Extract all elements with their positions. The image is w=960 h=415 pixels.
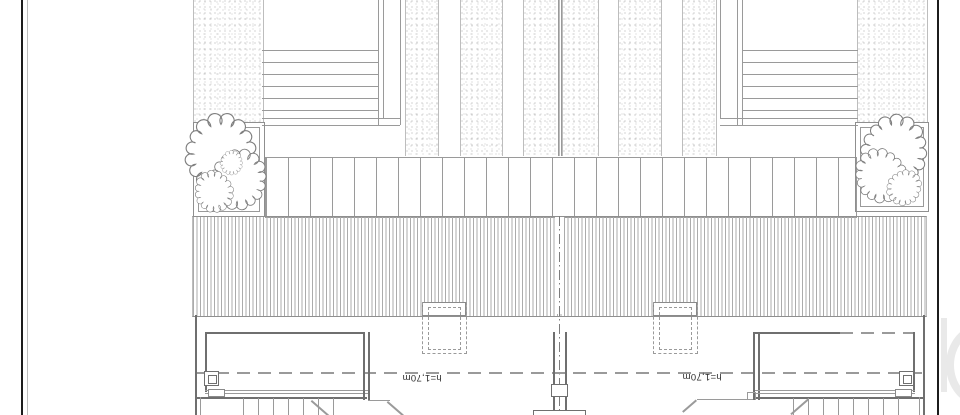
outer-wall-right-inner xyxy=(919,397,920,415)
stair-tread xyxy=(262,110,378,111)
tree-icon xyxy=(178,110,278,222)
opening-right-edge xyxy=(697,399,753,400)
tree-icon xyxy=(844,108,940,216)
stair-edge-right xyxy=(742,0,743,125)
stair-landing-line xyxy=(720,118,858,119)
stair-edge-left xyxy=(378,0,379,125)
room-left-wall-bottom-b xyxy=(205,393,368,394)
sheet-edge-left-inner xyxy=(27,0,28,415)
party-wall-right-face xyxy=(565,332,567,415)
architectural-plan-page: h=1,70m h=1,70m xyxy=(0,0,960,415)
stair-landing-line xyxy=(262,118,400,119)
tree-right xyxy=(844,108,940,216)
room-right-wall-bottom-b xyxy=(755,393,915,394)
shaft-box-right-inner xyxy=(903,375,912,384)
stair-tread xyxy=(262,86,378,87)
room-right-wall-top-solid xyxy=(755,332,840,334)
room-left-wall-right-b xyxy=(368,332,370,400)
gravel-column-right xyxy=(857,0,928,122)
tree-left xyxy=(178,110,278,222)
party-wall-axis-top-b xyxy=(561,0,562,156)
stair-landing-line xyxy=(720,125,858,126)
stair-tread xyxy=(742,86,858,87)
opening-left-splay xyxy=(387,401,404,415)
roof-stripe xyxy=(523,0,560,156)
stair-tread xyxy=(262,50,378,51)
opening-right-splay xyxy=(682,400,697,413)
room-left-wall-right-a xyxy=(363,332,365,400)
chimney-right-inner xyxy=(659,307,692,350)
stairs-lower-right xyxy=(793,398,899,415)
opening-right-step xyxy=(747,392,756,400)
stair-tread xyxy=(742,50,858,51)
party-wall-left-face xyxy=(553,332,555,415)
roof-stripe xyxy=(618,0,662,156)
stair-tread xyxy=(262,62,378,63)
wall-nib-left xyxy=(208,389,225,397)
wall-band-right-a xyxy=(720,0,721,118)
stair-tread xyxy=(742,62,858,63)
roof-stripe xyxy=(460,0,503,156)
stair-tread xyxy=(742,98,858,99)
wall-band-left-a xyxy=(383,0,384,118)
outer-wall-left xyxy=(195,315,197,415)
wall-band-left-b xyxy=(400,0,401,125)
outer-wall-right xyxy=(923,315,925,415)
room-right-wall-top-dashed xyxy=(840,332,915,334)
outer-wall-left-inner xyxy=(200,397,201,415)
wall-nib-right xyxy=(895,389,912,397)
watermark-logo xyxy=(946,324,960,406)
height-label-right: h=1,70m xyxy=(670,370,734,383)
terrace-slat-band xyxy=(265,157,857,218)
height-line-dashed xyxy=(195,372,925,374)
stair-tread xyxy=(742,110,858,111)
sheet-edge-left xyxy=(21,0,23,415)
roof-stripe xyxy=(682,0,717,156)
room-left-wall-top xyxy=(205,332,365,334)
wall-band-right-b xyxy=(737,0,738,125)
stair-tread xyxy=(742,74,858,75)
stair-tread xyxy=(262,98,378,99)
height-label-left: h=1,70m xyxy=(390,371,454,384)
party-wall-footing xyxy=(533,410,586,415)
room-right-wall-bottom-a xyxy=(755,390,915,391)
chimney-left-inner xyxy=(428,307,461,350)
shaft-box-left-inner xyxy=(208,375,217,384)
stair-landing-line xyxy=(262,125,400,126)
roof-stripe xyxy=(562,0,599,156)
gravel-column-left xyxy=(193,0,264,122)
roof-stripe xyxy=(405,0,439,156)
party-wall-axis-top-a xyxy=(558,0,559,156)
stair-tread xyxy=(262,74,378,75)
party-wall-box xyxy=(551,384,568,397)
room-left-wall-bottom-a xyxy=(205,390,368,391)
